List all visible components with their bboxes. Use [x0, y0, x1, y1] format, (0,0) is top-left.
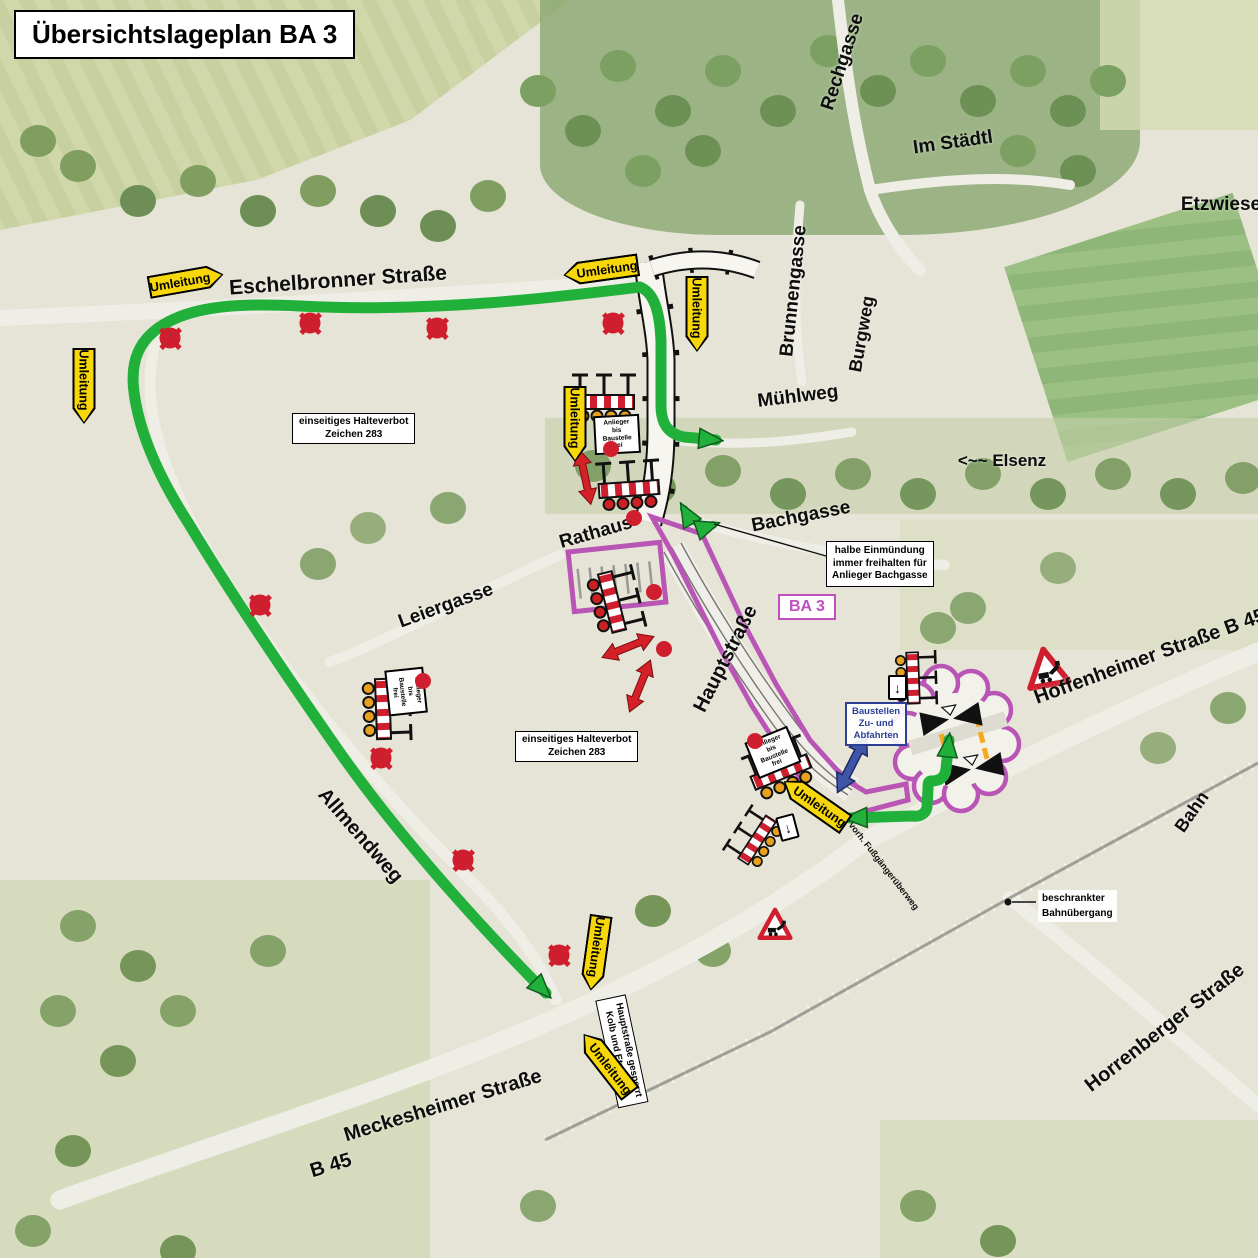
street-label-bahn: Bahn [1170, 788, 1213, 837]
no-stopping-sign-icon [603, 313, 624, 334]
detour-sign-label: Umleitung [147, 263, 226, 299]
detour-sign-1: Umleitung [147, 263, 226, 299]
street-label-muehlweg: Mühlweg [756, 381, 839, 413]
down-arrow-icon: ↓ [782, 819, 793, 836]
street-label-meckesheimer-strasse: Meckesheimer Straße [341, 1065, 544, 1147]
street-label-burgweg: Burgweg [845, 294, 879, 373]
street-label-eschelbronner-strasse: Eschelbronner Straße [228, 261, 447, 300]
no-vehicles-sign-icon [747, 733, 763, 749]
note-line: Abfahrten [852, 730, 900, 742]
no-vehicles-sign-icon [626, 510, 642, 526]
direction-arrow-sign: ↓ [775, 813, 800, 842]
halteverbot-note-1: einseitiges Halteverbot Zeichen 283 [292, 413, 415, 444]
no-vehicles-sign-icon [646, 584, 662, 600]
street-label-elsenz: <~~ Elsenz [958, 451, 1046, 471]
halteverbot-note-2: einseitiges Halteverbot Zeichen 283 [515, 731, 638, 762]
no-stopping-sign-icon [160, 328, 181, 349]
site-access-note: Baustellen Zu- und Abfahrten [845, 702, 907, 746]
detour-sign-4: Umleitung [686, 276, 709, 352]
note-line: halbe Einmündung [832, 545, 928, 558]
site-plan-map: Übersichtslageplan BA 3 einseitiges Halt… [0, 0, 1258, 1258]
street-label-im-staedtl: Im Städtl [912, 127, 995, 160]
no-vehicles-sign-icon [603, 441, 619, 457]
detour-sign-label: Umleitung [564, 386, 587, 462]
detour-sign-label: Umleitung [579, 914, 612, 992]
note-line: Zu- und [852, 718, 900, 730]
street-label-horrenberger-strasse: Horrenberger Straße [1081, 959, 1249, 1098]
pedestrian-crossing-note: vorh. Fußgängerüberweg [847, 820, 921, 911]
down-arrow-icon: ↓ [894, 680, 901, 696]
level-crossing-note: beschrankter Bahnübergang [1038, 890, 1117, 922]
no-stopping-sign-icon [371, 748, 392, 769]
street-label-bachgasse: Bachgasse [750, 497, 853, 538]
einmuendung-note: halbe Einmündung immer freihalten für An… [826, 541, 934, 587]
street-label-brunnengasse: Brunnengasse [776, 224, 812, 358]
label-layer: Übersichtslageplan BA 3 einseitiges Halt… [0, 0, 1258, 1258]
detour-sign-2: Umleitung [73, 348, 96, 424]
page-title: Übersichtslageplan BA 3 [14, 10, 355, 59]
street-label-rathaus: Rathaus [557, 512, 635, 554]
detour-sign-label: Umleitung [73, 348, 96, 424]
street-label-etzwiese: Etzwiese [1181, 194, 1258, 216]
no-stopping-sign-icon [427, 318, 448, 339]
no-vehicles-sign-icon [415, 673, 431, 689]
no-stopping-sign-icon [250, 595, 271, 616]
street-label-b45: B 45 [307, 1149, 354, 1183]
note-line: einseitiges Halteverbot [522, 734, 631, 747]
note-line: Bahnübergang [1042, 906, 1113, 921]
street-label-hoffenheimer-strasse: Hoffenheimer Straße B 45 [1031, 604, 1258, 709]
note-line: immer freihalten für [832, 558, 928, 571]
note-line: Anlieger Bachgasse [832, 570, 928, 583]
street-label-rechgasse: Rechgasse [817, 11, 869, 113]
no-vehicles-sign-icon [656, 641, 672, 657]
note-line: beschrankter [1042, 891, 1113, 906]
no-stopping-sign-icon [300, 313, 321, 334]
ba3-zone-label: BA 3 [778, 594, 836, 620]
detour-sign-label: Umleitung [686, 276, 709, 352]
no-stopping-sign-icon [549, 945, 570, 966]
sign-line: bis Baustelle [597, 426, 638, 444]
street-label-hauptstrasse: Hauptstraße [689, 602, 762, 716]
note-line: Zeichen 283 [522, 747, 631, 760]
street-label-leiergasse: Leiergasse [396, 579, 497, 634]
detour-sign-5: Umleitung [564, 386, 587, 462]
note-line: einseitiges Halteverbot [299, 416, 408, 429]
note-line: Zeichen 283 [299, 429, 408, 442]
detour-sign-3: Umleitung [562, 253, 640, 286]
detour-sign-7: Umleitung [579, 914, 612, 992]
direction-arrow-sign: ↓ [888, 675, 907, 700]
detour-sign-label: Umleitung [562, 253, 640, 286]
no-stopping-sign-icon [453, 850, 474, 871]
street-label-allmendweg: Allmendweg [313, 784, 408, 888]
note-line: Baustellen [852, 706, 900, 718]
